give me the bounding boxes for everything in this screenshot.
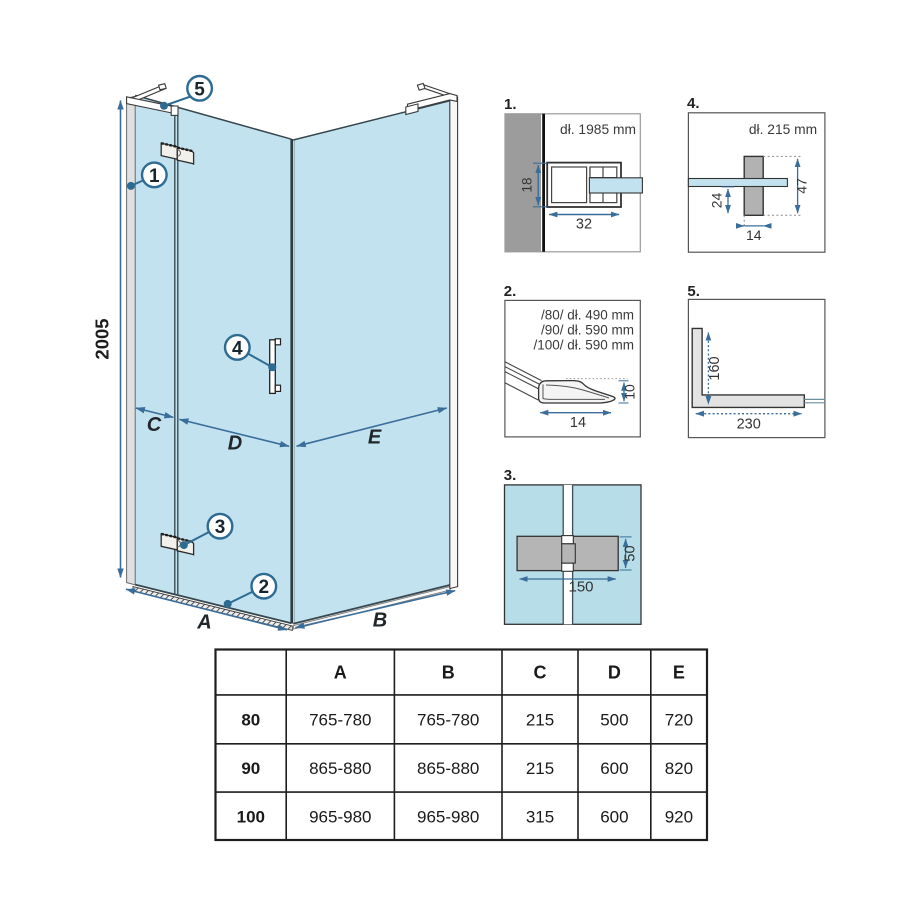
svg-text:80: 80: [241, 711, 260, 730]
svg-text:100: 100: [237, 808, 265, 827]
svg-text:965-980: 965-980: [309, 808, 371, 827]
svg-text:765-780: 765-780: [417, 711, 479, 730]
svg-text:315: 315: [526, 808, 554, 827]
svg-text:965-980: 965-980: [417, 808, 479, 827]
svg-text:C: C: [147, 414, 162, 436]
svg-text:500: 500: [600, 711, 628, 730]
svg-text:/90/ dł. 590 mm: /90/ dł. 590 mm: [541, 323, 634, 338]
svg-text:765-780: 765-780: [309, 711, 371, 730]
svg-text:E: E: [673, 663, 685, 683]
svg-text:5: 5: [194, 79, 205, 100]
svg-text:A: A: [334, 663, 347, 683]
svg-text:1.: 1.: [504, 96, 517, 113]
svg-text:B: B: [373, 610, 387, 632]
svg-text:A: A: [196, 612, 211, 634]
svg-text:24: 24: [709, 193, 725, 209]
svg-text:2.: 2.: [504, 283, 517, 300]
svg-text:4: 4: [232, 338, 243, 359]
svg-text:D: D: [608, 663, 621, 683]
svg-text:160: 160: [707, 356, 723, 380]
svg-text:32: 32: [576, 217, 592, 233]
svg-text:E: E: [368, 427, 382, 449]
svg-text:50: 50: [623, 545, 639, 561]
svg-text:/80/ dł. 490 mm: /80/ dł. 490 mm: [541, 308, 634, 323]
svg-text:dł. 215 mm: dł. 215 mm: [749, 122, 817, 137]
svg-text:47: 47: [794, 178, 810, 194]
svg-text:18: 18: [520, 177, 535, 192]
svg-text:230: 230: [737, 417, 761, 433]
svg-text:920: 920: [665, 808, 693, 827]
svg-text:C: C: [534, 663, 547, 683]
svg-text:215: 215: [526, 759, 554, 778]
svg-text:B: B: [442, 663, 455, 683]
svg-text:150: 150: [568, 579, 593, 596]
svg-text:2: 2: [259, 577, 270, 598]
svg-text:720: 720: [665, 711, 693, 730]
svg-text:14: 14: [746, 227, 762, 243]
svg-text:D: D: [228, 433, 242, 455]
svg-text:3.: 3.: [504, 467, 517, 484]
svg-text:865-880: 865-880: [309, 759, 371, 778]
svg-text:4.: 4.: [687, 95, 700, 112]
svg-text:5.: 5.: [687, 283, 700, 300]
svg-text:/100/ dł. 590 mm: /100/ dł. 590 mm: [533, 338, 634, 353]
svg-text:215: 215: [526, 711, 554, 730]
svg-text:600: 600: [600, 759, 628, 778]
svg-text:10: 10: [622, 384, 638, 400]
svg-text:3: 3: [215, 517, 226, 538]
svg-text:820: 820: [665, 759, 693, 778]
svg-text:2005: 2005: [92, 318, 113, 359]
svg-text:1: 1: [149, 166, 160, 187]
svg-text:600: 600: [600, 808, 628, 827]
svg-text:dł. 1985 mm: dł. 1985 mm: [560, 122, 636, 137]
svg-text:90: 90: [241, 759, 260, 778]
svg-text:865-880: 865-880: [417, 759, 479, 778]
svg-text:14: 14: [570, 415, 586, 431]
